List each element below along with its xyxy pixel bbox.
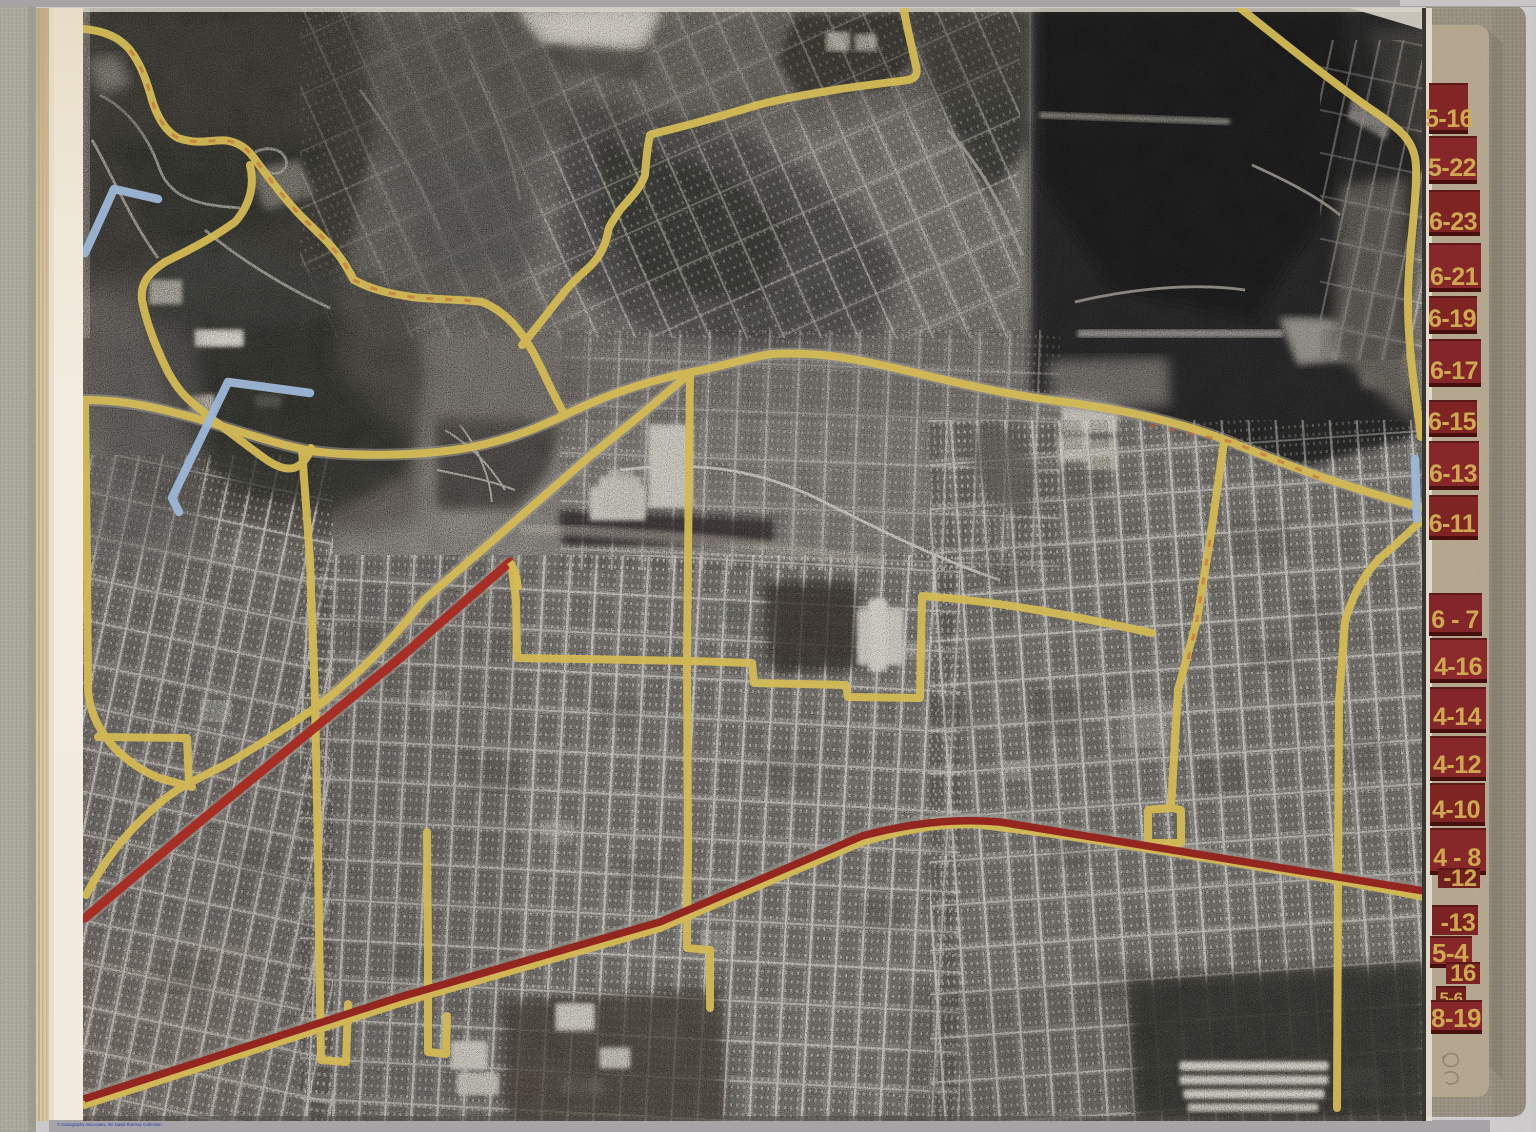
- svg-text:16: 16: [1450, 960, 1476, 987]
- svg-text:8-19: 8-19: [1431, 1003, 1481, 1033]
- svg-text:4-12: 4-12: [1433, 751, 1481, 779]
- svg-text:6-13: 6-13: [1429, 460, 1477, 488]
- svg-text:6 - 7: 6 - 7: [1431, 606, 1479, 634]
- svg-text:5-16: 5-16: [1425, 105, 1473, 133]
- svg-text:6-17: 6-17: [1430, 357, 1478, 385]
- svg-text:6-15: 6-15: [1428, 408, 1477, 436]
- svg-text:6-19: 6-19: [1428, 305, 1476, 333]
- svg-text:4-14: 4-14: [1433, 703, 1482, 731]
- svg-text:6-11: 6-11: [1429, 510, 1476, 538]
- svg-text:4-10: 4-10: [1432, 796, 1480, 824]
- svg-text:-12: -12: [1443, 865, 1476, 892]
- svg-text:5-22: 5-22: [1428, 154, 1476, 182]
- svg-text:© Cartography Associates, the: © Cartography Associates, the David Rums…: [57, 1122, 162, 1127]
- svg-text:6-21: 6-21: [1430, 263, 1479, 291]
- svg-text:4-16: 4-16: [1434, 653, 1482, 681]
- svg-text:6-23: 6-23: [1429, 208, 1477, 236]
- svg-text:-13: -13: [1441, 909, 1476, 937]
